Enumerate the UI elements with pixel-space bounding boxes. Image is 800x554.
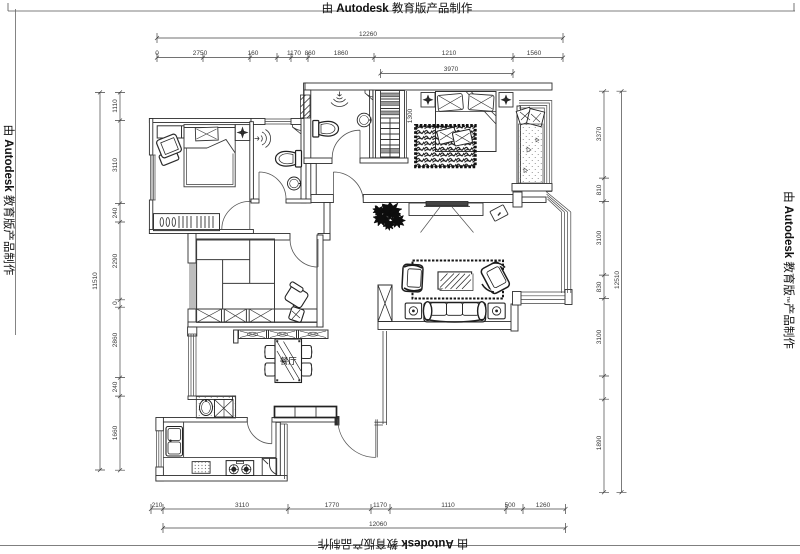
svg-text:由 Autodesk 教育版产品制作: 由 Autodesk 教育版产品制作 bbox=[2, 125, 16, 276]
svg-text:830: 830 bbox=[596, 281, 603, 292]
svg-text:500: 500 bbox=[505, 502, 516, 509]
svg-text:3110: 3110 bbox=[112, 158, 119, 172]
svg-text:1660: 1660 bbox=[112, 425, 119, 440]
svg-text:由 Autodesk 教育版产品制作: 由 Autodesk 教育版产品制作 bbox=[322, 1, 473, 15]
svg-text:由 Autodesk 教育版产品制作: 由 Autodesk 教育版产品制作 bbox=[317, 537, 468, 551]
svg-text:1300: 1300 bbox=[407, 108, 414, 123]
svg-text:240: 240 bbox=[112, 207, 119, 218]
svg-text:810: 810 bbox=[596, 184, 603, 195]
svg-text:3110: 3110 bbox=[235, 502, 249, 509]
svg-text:2860: 2860 bbox=[112, 332, 119, 347]
svg-text:1170: 1170 bbox=[287, 50, 301, 57]
svg-text:2290: 2290 bbox=[112, 253, 119, 268]
svg-text:3100: 3100 bbox=[596, 230, 603, 245]
svg-text:2750: 2750 bbox=[193, 50, 208, 57]
svg-text:餐厅: 餐厅 bbox=[280, 356, 298, 366]
svg-text:1210: 1210 bbox=[442, 50, 457, 57]
svg-text:1170: 1170 bbox=[373, 502, 387, 509]
svg-text:1860: 1860 bbox=[334, 50, 349, 57]
svg-text:0: 0 bbox=[155, 50, 159, 57]
svg-text:12260: 12260 bbox=[359, 31, 377, 38]
svg-text:1560: 1560 bbox=[527, 50, 542, 57]
svg-text:1110: 1110 bbox=[112, 99, 119, 113]
svg-text:160: 160 bbox=[248, 50, 259, 57]
svg-text:12060: 12060 bbox=[369, 521, 387, 528]
svg-text:210: 210 bbox=[152, 502, 163, 509]
svg-text:860: 860 bbox=[305, 50, 316, 57]
svg-text:0: 0 bbox=[112, 301, 119, 305]
svg-text:由 Autodesk 教育版™产品制作: 由 Autodesk 教育版™产品制作 bbox=[782, 191, 796, 349]
svg-text:12510: 12510 bbox=[614, 271, 621, 289]
svg-text:1260: 1260 bbox=[536, 502, 551, 509]
svg-text:1770: 1770 bbox=[325, 502, 340, 509]
svg-text:3970: 3970 bbox=[444, 66, 459, 73]
svg-text:11510: 11510 bbox=[92, 272, 99, 290]
svg-text:1890: 1890 bbox=[596, 435, 603, 450]
svg-text:1110: 1110 bbox=[441, 502, 455, 509]
svg-text:3100: 3100 bbox=[596, 329, 603, 344]
svg-text:3370: 3370 bbox=[596, 126, 603, 141]
svg-text:240: 240 bbox=[112, 381, 119, 392]
